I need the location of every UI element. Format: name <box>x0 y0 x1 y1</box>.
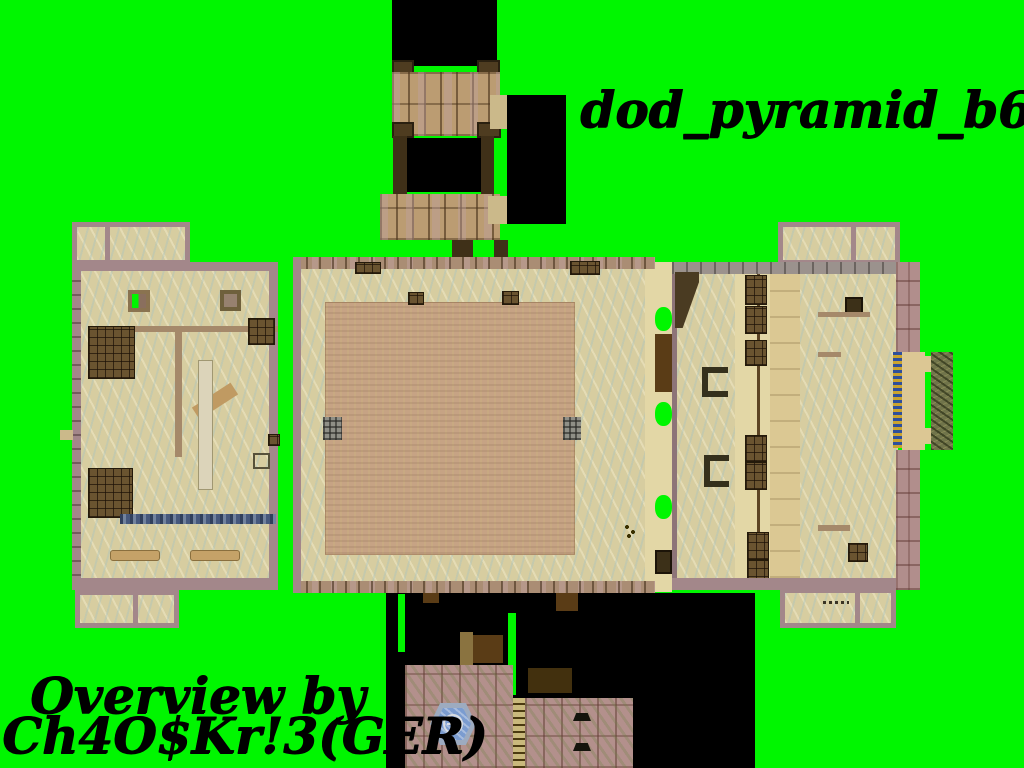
wall-south <box>72 578 278 590</box>
crate <box>745 340 767 366</box>
arch-shadow <box>573 713 591 721</box>
wall-ridge <box>770 274 800 578</box>
annex-divider-wall <box>105 227 110 260</box>
east-outer-wall <box>896 262 920 354</box>
courtyard-step-strip <box>513 698 525 768</box>
bridge-pillar-stub <box>452 240 473 258</box>
floor-marking <box>823 601 849 604</box>
wall-north <box>72 262 278 271</box>
south-shadow-block <box>633 700 755 768</box>
crate <box>848 543 868 562</box>
wall-hole <box>655 402 672 426</box>
annex-divider-wall <box>851 227 856 260</box>
crate-stack <box>88 326 135 379</box>
wall-west <box>72 271 81 590</box>
crate <box>502 291 519 305</box>
crate <box>745 306 767 334</box>
crate <box>745 275 767 305</box>
crate-row <box>570 261 600 275</box>
rubble <box>528 668 572 693</box>
bridge-shadow-gap <box>407 138 481 192</box>
wall-east-ledge <box>645 269 655 581</box>
wall-west <box>293 257 301 593</box>
shadow-gap <box>398 594 405 652</box>
crate <box>745 435 767 462</box>
bridge-pillar <box>481 136 494 196</box>
pyramid-hall <box>293 257 655 593</box>
floor-opening <box>128 290 150 312</box>
stair-block-west <box>323 417 342 440</box>
floor-hatch <box>253 453 270 469</box>
sandbag-position <box>702 367 728 397</box>
crate-stack <box>88 468 133 518</box>
east-building-south-annex <box>780 588 896 628</box>
rubble <box>423 593 439 603</box>
west-building-south-annex <box>75 590 179 628</box>
crate <box>248 318 275 345</box>
map-title: dod_pyramid_b6 <box>580 80 1024 139</box>
west-building-north-annex <box>72 222 190 265</box>
wall-north <box>672 262 920 274</box>
doorway-shadow <box>655 550 672 574</box>
rubble-specks <box>623 523 639 541</box>
wall-step <box>60 430 73 440</box>
wall-south <box>293 581 655 593</box>
north-east-shadow-block <box>507 95 566 224</box>
bridge-pillar-stub <box>494 240 508 258</box>
west-building <box>72 262 278 590</box>
bench <box>110 550 160 561</box>
wall-fragment <box>490 95 507 129</box>
south-courtyard <box>525 698 633 768</box>
wall-north <box>293 257 655 269</box>
rubble <box>556 593 578 611</box>
annex-divider-wall <box>133 595 138 623</box>
bench <box>190 550 240 561</box>
balcony-ledge <box>902 352 925 450</box>
credit-line-2: Ch4O$Kr!3(GER) <box>2 706 488 765</box>
ladder <box>893 352 902 448</box>
grass-patch <box>931 352 953 450</box>
crate <box>268 434 280 446</box>
interior-wall <box>175 326 182 457</box>
stairway <box>120 514 276 524</box>
interior-wall <box>818 352 841 357</box>
courtyard-link-wall <box>655 262 672 592</box>
north-bridge-lower <box>380 194 500 240</box>
stair-block-east <box>563 417 581 440</box>
sandbag-position <box>704 455 729 487</box>
map-overview: dod_pyramid_b6 Overview by Ch4O$Kr!3(GER… <box>0 0 1024 768</box>
north-shadow-block <box>392 0 497 66</box>
pyramid-top-platform <box>325 302 575 555</box>
east-outer-wall <box>896 450 920 590</box>
bridge-pillar <box>393 136 407 196</box>
annex-divider-wall <box>855 593 860 623</box>
crate <box>745 462 767 490</box>
crate <box>408 292 424 305</box>
arch-shadow <box>573 743 591 751</box>
interior-wall <box>818 312 870 317</box>
floor-opening <box>220 290 241 311</box>
long-board <box>198 360 213 490</box>
east-building <box>672 262 920 590</box>
interior-wall <box>818 525 850 531</box>
east-building-north-annex <box>778 222 900 265</box>
rubble <box>460 632 473 667</box>
rubble <box>473 635 503 663</box>
wall-stain <box>655 334 672 392</box>
wall-hole <box>655 495 672 519</box>
crate-row <box>355 262 381 274</box>
crate <box>747 532 769 560</box>
wall-fragment <box>488 196 507 224</box>
wall-hole <box>655 307 672 331</box>
